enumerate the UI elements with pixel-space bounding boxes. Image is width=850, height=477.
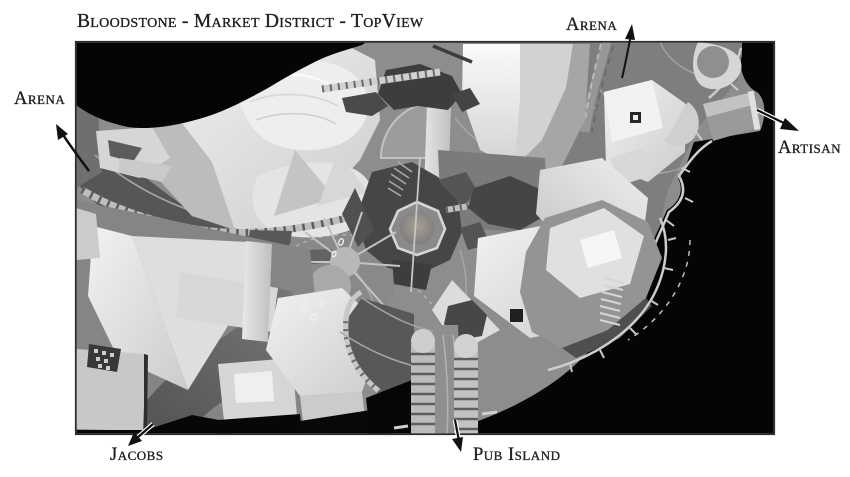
svg-text:Bloodstone - Market District -: Bloodstone - Market District - TopView bbox=[77, 11, 424, 32]
svg-text:Arena: Arena bbox=[566, 15, 617, 35]
svg-text:Artisan: Artisan bbox=[778, 138, 841, 158]
svg-text:Pub Island: Pub Island bbox=[473, 445, 560, 465]
svg-text:Jacobs: Jacobs bbox=[110, 445, 164, 465]
svg-text:Arena: Arena bbox=[14, 89, 65, 109]
